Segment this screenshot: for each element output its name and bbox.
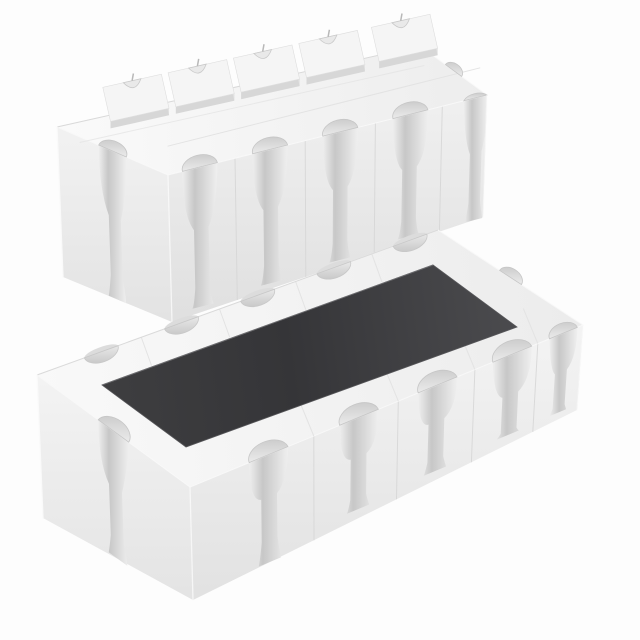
resistor-array-photo-canvas [0, 0, 640, 640]
product-photo [0, 0, 640, 640]
